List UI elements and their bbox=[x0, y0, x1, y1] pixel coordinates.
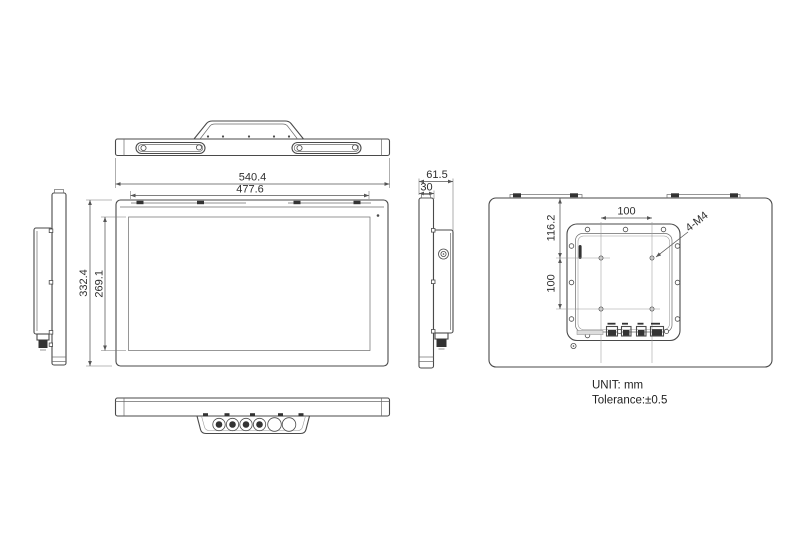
front-view bbox=[116, 200, 388, 366]
screw-tab-icon bbox=[225, 413, 230, 416]
bracket-foot-icon bbox=[671, 193, 679, 197]
unit-note: UNIT: mm bbox=[592, 380, 643, 392]
bracket-foot-icon bbox=[354, 201, 361, 204]
front-view-bezel bbox=[116, 200, 388, 366]
screw-icon bbox=[273, 135, 275, 137]
dim-panel-depth: 30 bbox=[420, 182, 432, 194]
dim-vesa-top-offset: 116.2 bbox=[546, 215, 558, 242]
power-led-icon bbox=[377, 214, 380, 217]
bottom-view bbox=[116, 398, 390, 434]
screw-icon bbox=[207, 135, 209, 137]
connector-body bbox=[435, 333, 448, 339]
tolerance-note: Tolerance:±0.5 bbox=[592, 395, 667, 407]
drawing-notes: UNIT: mm Tolerance:±0.5 bbox=[592, 380, 667, 407]
drawing-canvas: 540.4 477.6 332.4 269.1 bbox=[0, 0, 800, 560]
bracket-foot-icon bbox=[513, 193, 521, 197]
screw-icon bbox=[248, 135, 250, 137]
dim-vesa-vertical: 100 bbox=[546, 274, 558, 292]
dim-overall-depth: 61.5 bbox=[426, 169, 447, 181]
port-label bbox=[638, 323, 644, 325]
dim-display-height: 269.1 bbox=[94, 270, 106, 298]
port-label bbox=[651, 323, 660, 325]
rear-view bbox=[489, 193, 772, 367]
port-label bbox=[608, 323, 616, 325]
left-side-view bbox=[34, 190, 66, 366]
dim-vesa-horizontal: 100 bbox=[617, 206, 635, 218]
dim-overall-width: 540.4 bbox=[239, 172, 267, 184]
screw-icon bbox=[49, 229, 53, 233]
connector-plug-icon bbox=[39, 340, 48, 348]
screw-icon bbox=[196, 145, 201, 150]
screw-icon bbox=[431, 280, 435, 284]
screw-icon bbox=[352, 145, 357, 150]
port-label bbox=[622, 323, 628, 325]
screw-tab-icon bbox=[203, 413, 208, 416]
connector-body bbox=[37, 334, 49, 340]
right-side-rear-box bbox=[434, 230, 454, 333]
dim-display-width: 477.6 bbox=[236, 184, 264, 196]
ground-stud-icon bbox=[443, 253, 445, 255]
screw-icon bbox=[141, 145, 146, 150]
blank-cap-icon bbox=[282, 418, 296, 432]
connector-plug-icon bbox=[437, 339, 447, 347]
screw-icon bbox=[288, 135, 290, 137]
bracket-foot-icon bbox=[137, 201, 144, 204]
bracket-foot-icon bbox=[294, 201, 301, 204]
screw-tab-icon bbox=[278, 413, 283, 416]
screw-icon bbox=[222, 135, 224, 137]
bracket-foot-icon bbox=[570, 193, 578, 197]
dim-overall-height: 332.4 bbox=[78, 269, 90, 297]
left-side-panel bbox=[52, 193, 66, 365]
vent-slot-icon bbox=[579, 245, 582, 259]
screw-icon bbox=[49, 331, 53, 335]
ground-screw-icon bbox=[573, 345, 575, 347]
technical-drawing-page: 540.4 477.6 332.4 269.1 bbox=[0, 0, 800, 560]
screw-icon bbox=[297, 145, 302, 150]
blank-cap-icon bbox=[268, 418, 282, 432]
screw-icon bbox=[49, 281, 53, 285]
bracket-foot-icon bbox=[197, 201, 204, 204]
screw-icon bbox=[49, 343, 52, 346]
right-side-view bbox=[419, 195, 453, 369]
top-view bbox=[116, 121, 390, 156]
width-dimensions: 540.4 477.6 bbox=[116, 158, 390, 199]
screw-tab-icon bbox=[250, 413, 255, 416]
screw-icon bbox=[431, 229, 435, 233]
serial-label-strip bbox=[577, 331, 603, 335]
screw-tab-icon bbox=[299, 413, 304, 416]
bracket-foot-icon bbox=[730, 193, 738, 197]
